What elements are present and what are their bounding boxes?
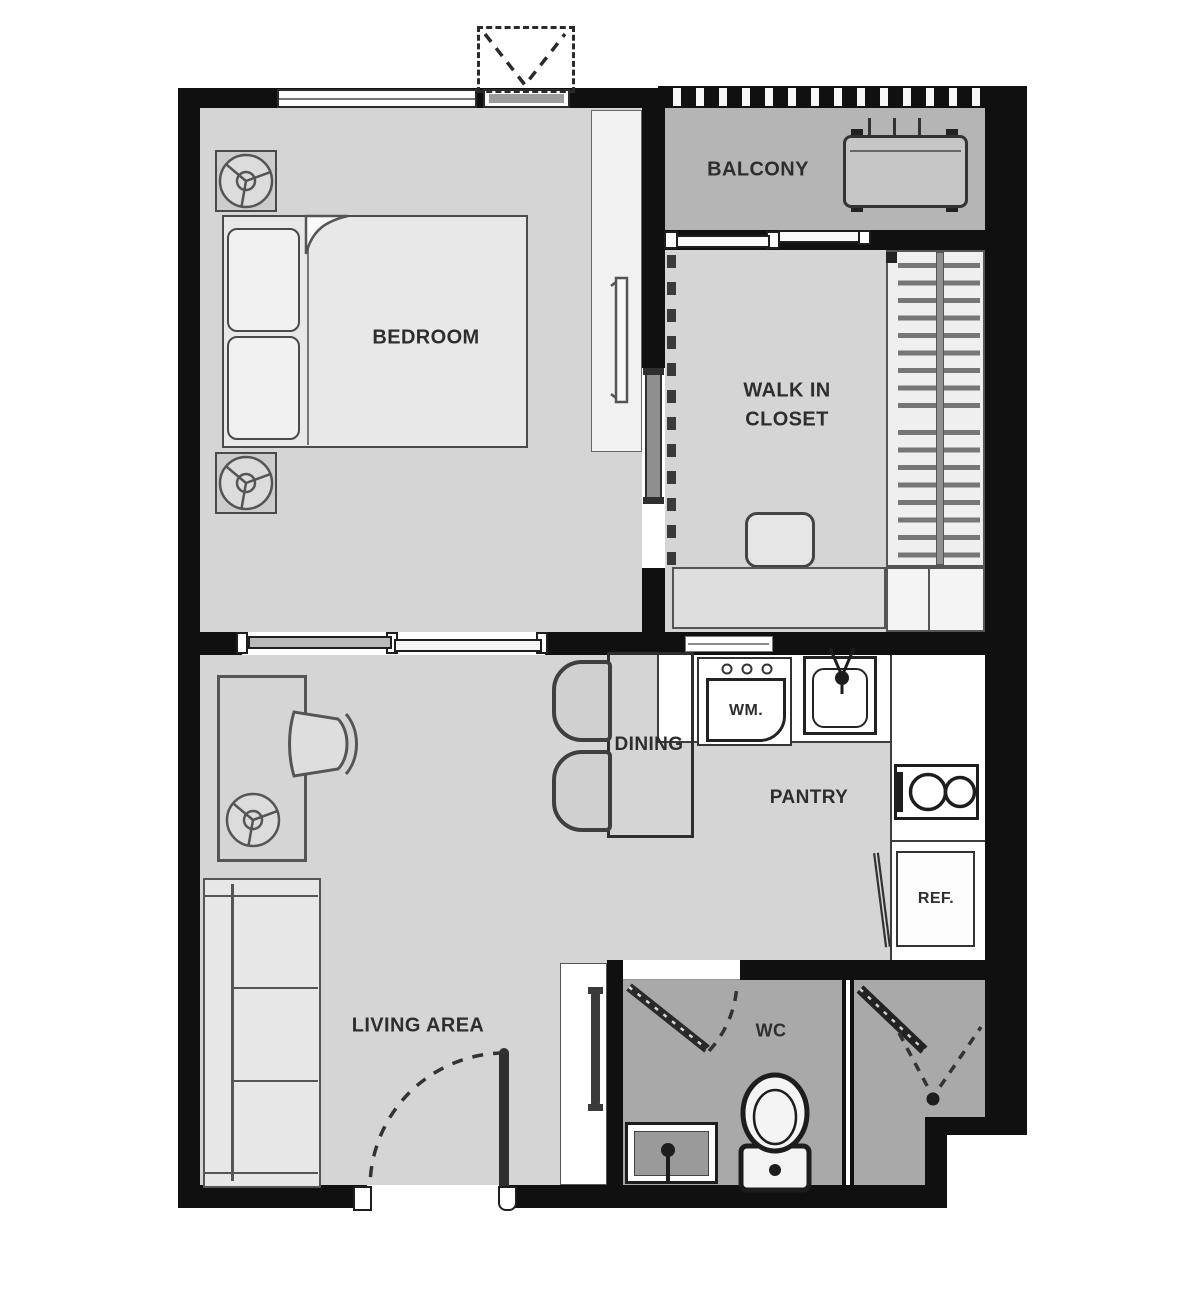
sofa [203,878,321,1188]
sofa-cushion-line-1 [231,987,318,989]
sofa-cushion-line-2 [231,1080,318,1082]
balcony-label: BALCONY [707,159,809,182]
bed-headboard-line [307,217,309,445]
vanity-basin [634,1131,709,1176]
nightstand-top [215,150,277,212]
bl-sliding-panel-glass [248,636,392,649]
pocket-door-panel [591,992,600,1106]
condenser-vent-2 [893,118,896,136]
cabinet-divider [928,569,930,630]
closet-stool [745,512,815,568]
wall-bedroom-closet-upper [642,88,665,368]
entrance-door-leaf [499,1048,509,1191]
wall-bedroom-closet-lower [642,568,665,655]
sliding-door-handle-bottom [643,497,664,504]
pantry-label: PANTRY [770,787,848,809]
stove [894,764,979,820]
bedroom-label: BEDROOM [372,327,479,350]
ac-unit-dashed-box [477,26,575,93]
entrance-jamb-right [498,1186,517,1211]
wc-label: WC [756,1021,787,1042]
sliding-door-panel [645,372,662,502]
wall-notch-step [925,1117,1027,1135]
pocket-door-cap-bottom [588,1104,603,1111]
dining-label: DINING [615,734,684,756]
sofa-armrest-bottom [205,1172,318,1174]
wardrobe-rod [936,252,944,565]
wall-left [178,88,200,1208]
balcony-sliding-panel-2 [778,230,860,243]
shower-floor-lower [854,1117,925,1185]
wall-wc-north [740,960,985,980]
wall-bottom-left [178,1185,367,1208]
refrigerator-label: REF. [918,890,954,908]
shower-floor [854,980,985,1117]
wall-right [985,86,1027,1135]
closet-dresser [672,567,886,629]
washing-machine-label: WM. [729,702,763,720]
window-infill-panel [489,94,564,103]
dining-chair-1 [552,660,612,742]
condenser-inner-line [850,150,961,152]
walk-in-closet-label-line1: WALK IN [743,380,830,403]
wall-bottom-right [503,1185,947,1208]
condenser-vent-3 [918,118,921,136]
pocket-door-cap-top [588,987,603,994]
kitchen-wall-inset [685,636,773,652]
wall-notch-stub [925,1135,947,1208]
closet-cabinet [886,567,985,632]
bl-door-jamb-left [236,632,248,654]
walk-in-closet-label-line2: CLOSET [745,409,829,432]
outside-mask [947,1135,1200,1313]
nightstand-bottom [215,452,277,514]
stove-control-bar [894,772,903,812]
pillow-1 [227,228,300,332]
condenser-vent-1 [868,118,871,136]
living-area-label: LIVING AREA [352,1015,485,1038]
sliding-door-handle-top [643,368,664,375]
bedroom-window [277,89,477,108]
window-mullion-line [279,98,475,100]
air-conditioner-unit [843,135,968,208]
balcony-sliding-panel-1 [676,235,770,248]
sofa-armrest-top [205,895,318,897]
floor-plan: BEDROOM BALCONY WALK IN CLOSET DINING PA… [0,0,1200,1313]
closet-partition-dashed-track [667,255,676,565]
wc-door-opening [623,960,740,980]
wardrobe-corner-block [886,252,897,263]
counter-edge-line [892,840,987,842]
desk [217,675,307,862]
tv-cabinet [591,110,642,452]
wall-wc-west [607,960,623,1185]
wall-wc-shower-partition [842,980,854,1185]
sofa-back-line [231,884,234,1181]
inset-line [688,643,769,645]
balcony-railing [658,86,985,108]
dining-chair-2 [552,750,612,832]
kitchen-sink-basin [812,668,868,728]
pillow-2 [227,336,300,440]
bl-sliding-panel-white [394,639,542,652]
entrance-jamb-left [353,1186,372,1211]
